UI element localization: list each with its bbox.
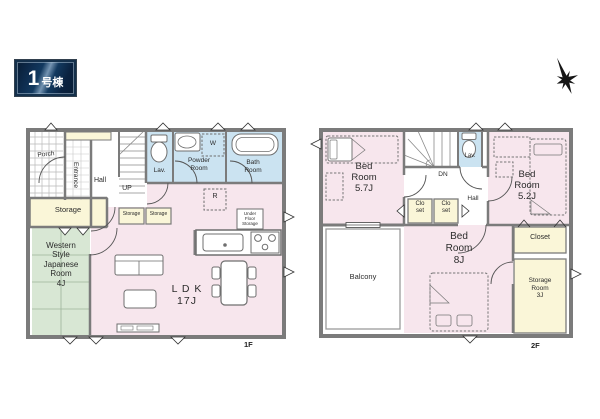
label-stairs-down: DN <box>432 171 454 179</box>
label-hall-1f: Hall <box>85 177 115 185</box>
toilet-bowl-icon <box>151 142 167 162</box>
label-powder-room: Powder Room <box>172 157 226 172</box>
room-porch-fill <box>28 130 63 198</box>
balcony-window <box>346 223 380 228</box>
building-badge: 1 号棟 <box>14 59 77 97</box>
chair-icon <box>248 285 256 297</box>
compass-icon <box>536 50 592 106</box>
shoe-cabinet <box>65 132 111 140</box>
label-closet-small-2: Clo set <box>434 201 458 214</box>
label-storage: Storage <box>33 206 103 215</box>
dining-table-icon <box>221 261 247 305</box>
label-lav-1f: Lav. <box>146 167 173 175</box>
tv-board-icon <box>117 324 159 332</box>
label-bath-room: Bath Room <box>226 159 280 174</box>
stairs-up-icon <box>119 130 145 193</box>
coffee-table-icon <box>124 290 156 308</box>
floorplan-1f: Porch Entrance Hall UP Lav. Powder Room … <box>25 127 287 340</box>
label-japanese-room: Western Style Japanese Room 4J <box>31 241 91 288</box>
label-balcony: Balcony <box>328 273 398 282</box>
label-bedroom-52: Bed Room 5.2J <box>496 169 558 203</box>
toilet-tank-icon <box>462 133 476 140</box>
floorplan-page: 1 号棟 <box>0 0 600 419</box>
floor1-tag: 1F <box>244 340 253 349</box>
stairs-down-icon <box>404 131 450 168</box>
chair-icon <box>212 267 220 279</box>
label-hall-2f: Hall <box>460 195 486 203</box>
toilet-tank-icon <box>151 135 167 142</box>
label-stairs-up: UP <box>114 185 140 193</box>
label-bedroom-8: Bed Room 8J <box>428 231 490 266</box>
badge-number: 1 <box>28 68 40 89</box>
compass-main-star <box>548 53 584 98</box>
bed57-icon <box>328 138 352 161</box>
label-refrigerator: R <box>204 193 226 201</box>
kitchen-sink-icon <box>203 234 243 251</box>
floorplan-2f: Bed Room 5.7J DN Lav. Hall Clo set Clo s… <box>318 127 574 339</box>
label-washer: W <box>202 140 224 148</box>
label-lav-2f: Lav. <box>458 153 482 160</box>
badge-suffix: 号棟 <box>41 67 63 90</box>
label-storage-room: Storage Room 3J <box>514 277 566 300</box>
label-under-floor-storage: Under Floor Storage <box>237 211 263 227</box>
label-storage-small-2: Storage <box>146 212 171 218</box>
chair-icon <box>248 267 256 279</box>
compass-minor-star <box>553 67 579 93</box>
floor2-tag: 2F <box>531 341 540 350</box>
label-bedroom-57: Bed Room 5.7J <box>330 161 398 195</box>
label-closet-small-1: Clo set <box>408 201 432 214</box>
label-entrance: Entrance <box>66 147 79 203</box>
label-closet: Closet <box>514 234 566 242</box>
label-ldk: L D K 17J <box>155 283 219 308</box>
label-storage-small-1: Storage <box>119 212 144 218</box>
